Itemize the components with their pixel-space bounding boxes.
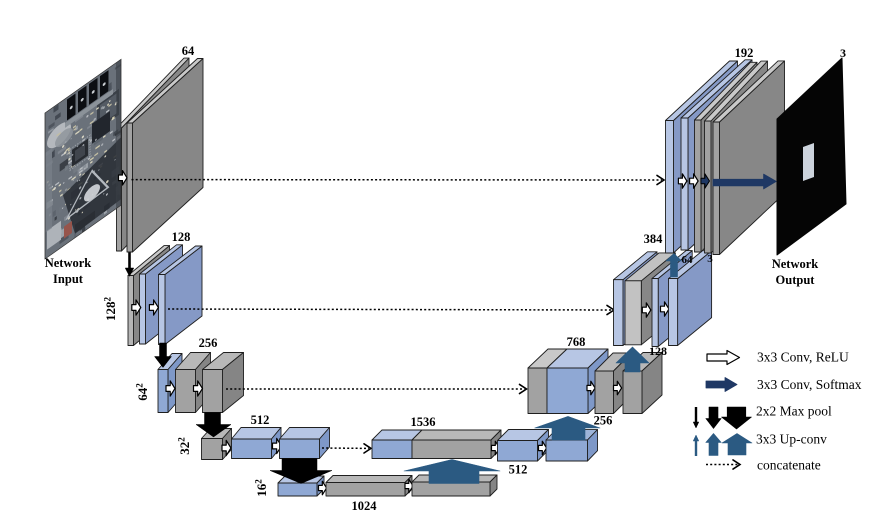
svg-text:3: 3 — [840, 46, 846, 60]
svg-text:3x3 Conv, ReLU: 3x3 Conv, ReLU — [757, 350, 849, 365]
svg-text:concatenate: concatenate — [757, 458, 821, 473]
svg-text:768: 768 — [567, 335, 586, 349]
svg-text:3x3 Conv, Softmax: 3x3 Conv, Softmax — [757, 377, 862, 392]
svg-text:3x3 Up-conv: 3x3 Up-conv — [756, 432, 827, 447]
svg-text:1536: 1536 — [411, 415, 436, 429]
svg-text:Network: Network — [45, 256, 92, 270]
svg-text:64: 64 — [682, 254, 694, 266]
svg-text:64: 64 — [182, 44, 195, 58]
svg-text:128: 128 — [649, 344, 667, 358]
svg-text:Network: Network — [772, 257, 819, 271]
svg-text:1024: 1024 — [352, 499, 378, 513]
svg-text:512: 512 — [251, 413, 270, 427]
svg-text:256: 256 — [199, 336, 218, 350]
svg-text:Input: Input — [53, 272, 84, 286]
svg-text:2x2 Max pool: 2x2 Max pool — [756, 404, 832, 419]
svg-text:384: 384 — [644, 232, 664, 246]
svg-text:Output: Output — [776, 273, 816, 287]
svg-text:3: 3 — [707, 253, 713, 265]
svg-text:512: 512 — [509, 463, 528, 477]
svg-text:128: 128 — [172, 230, 191, 244]
svg-text:192: 192 — [735, 46, 754, 60]
svg-text:256: 256 — [594, 414, 613, 428]
